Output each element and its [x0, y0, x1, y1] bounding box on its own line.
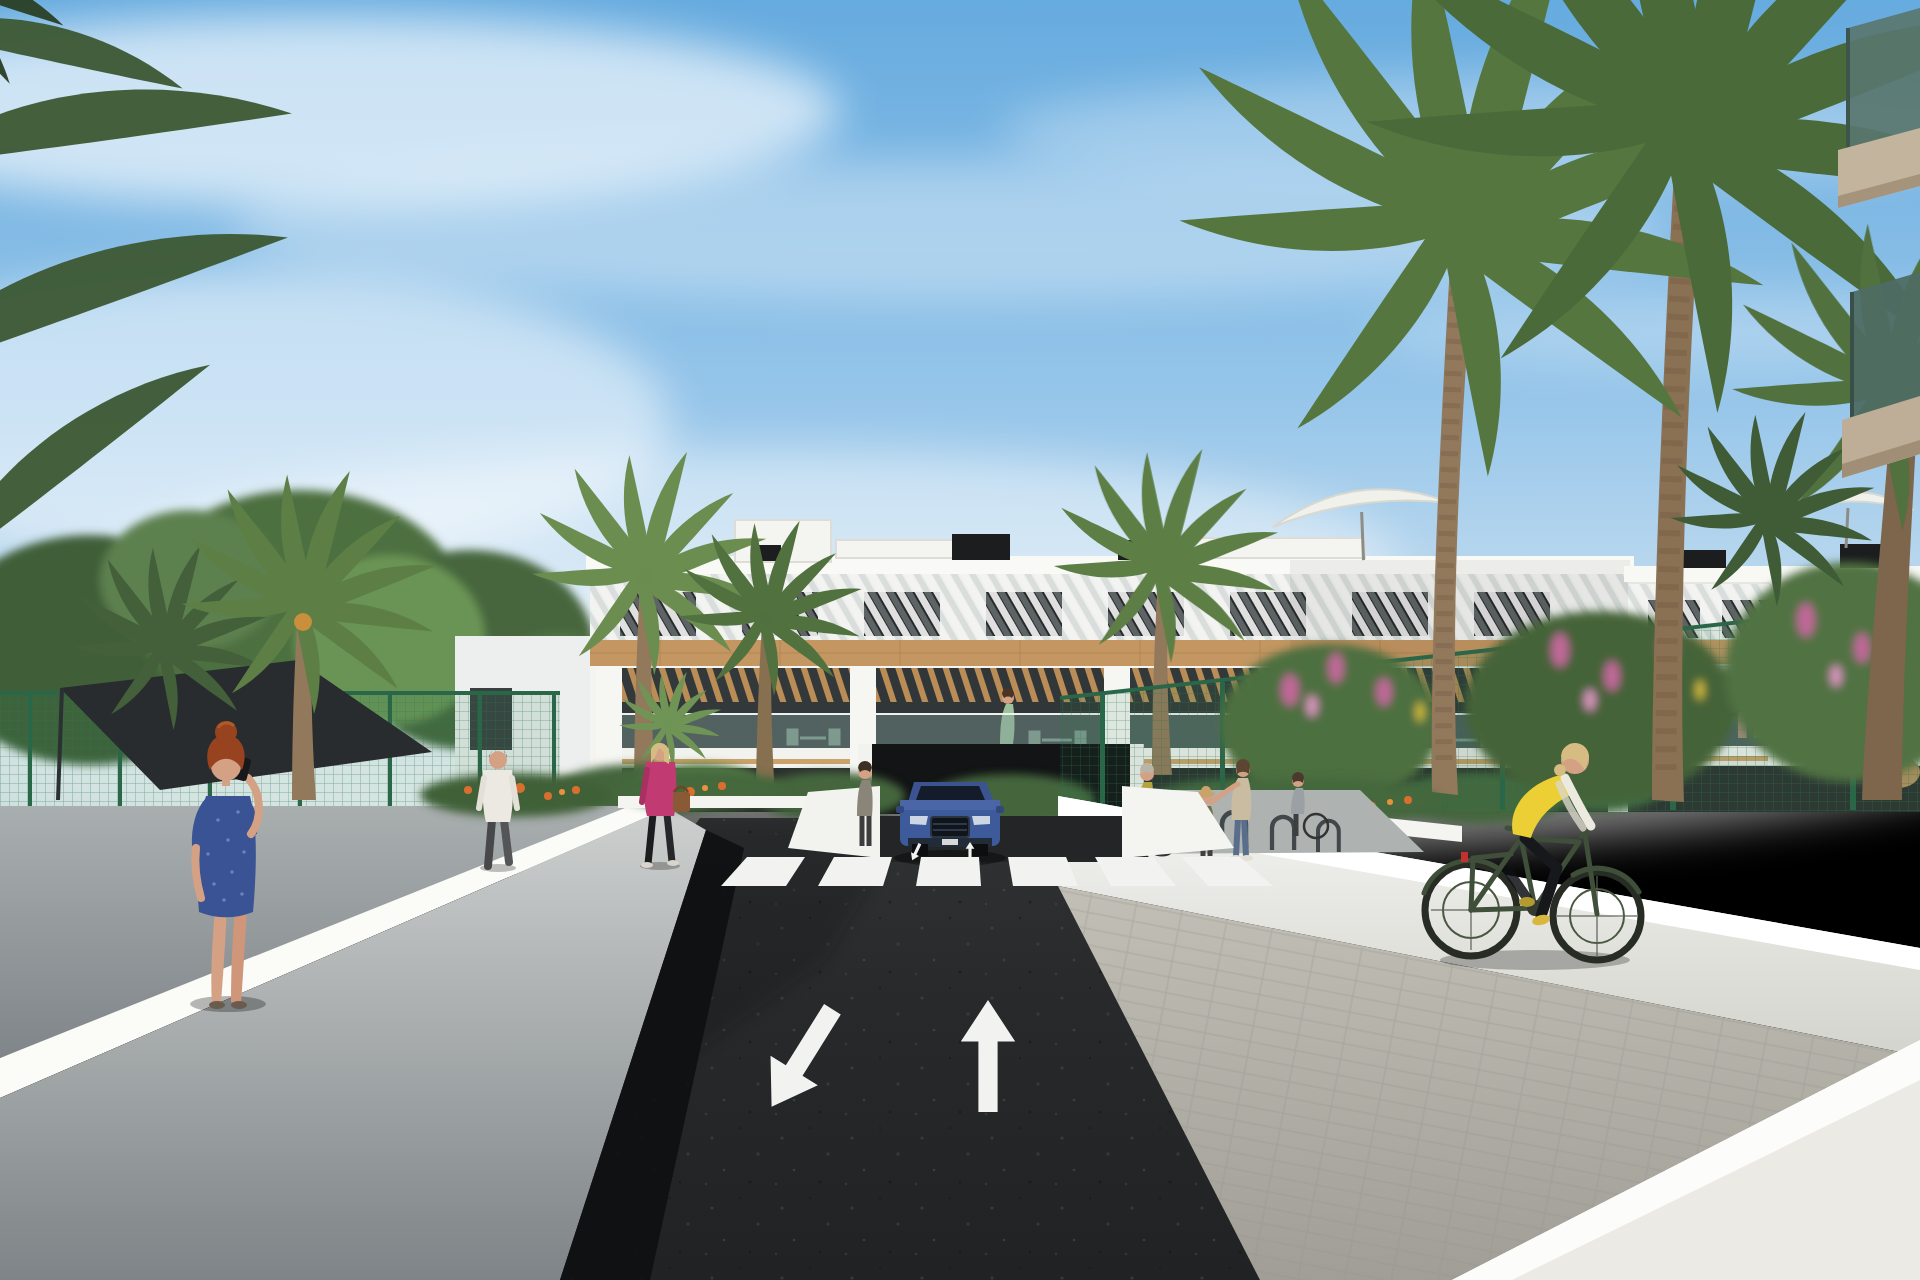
bike-tail-light: [1461, 852, 1468, 862]
balcony-glass-upper: [1848, 8, 1920, 150]
handbag: [673, 792, 690, 812]
palm-dates: [294, 613, 312, 631]
architectural-rendering: [0, 0, 1920, 1280]
balcony-glass-lower: [1852, 272, 1920, 420]
suv: [894, 782, 1006, 866]
